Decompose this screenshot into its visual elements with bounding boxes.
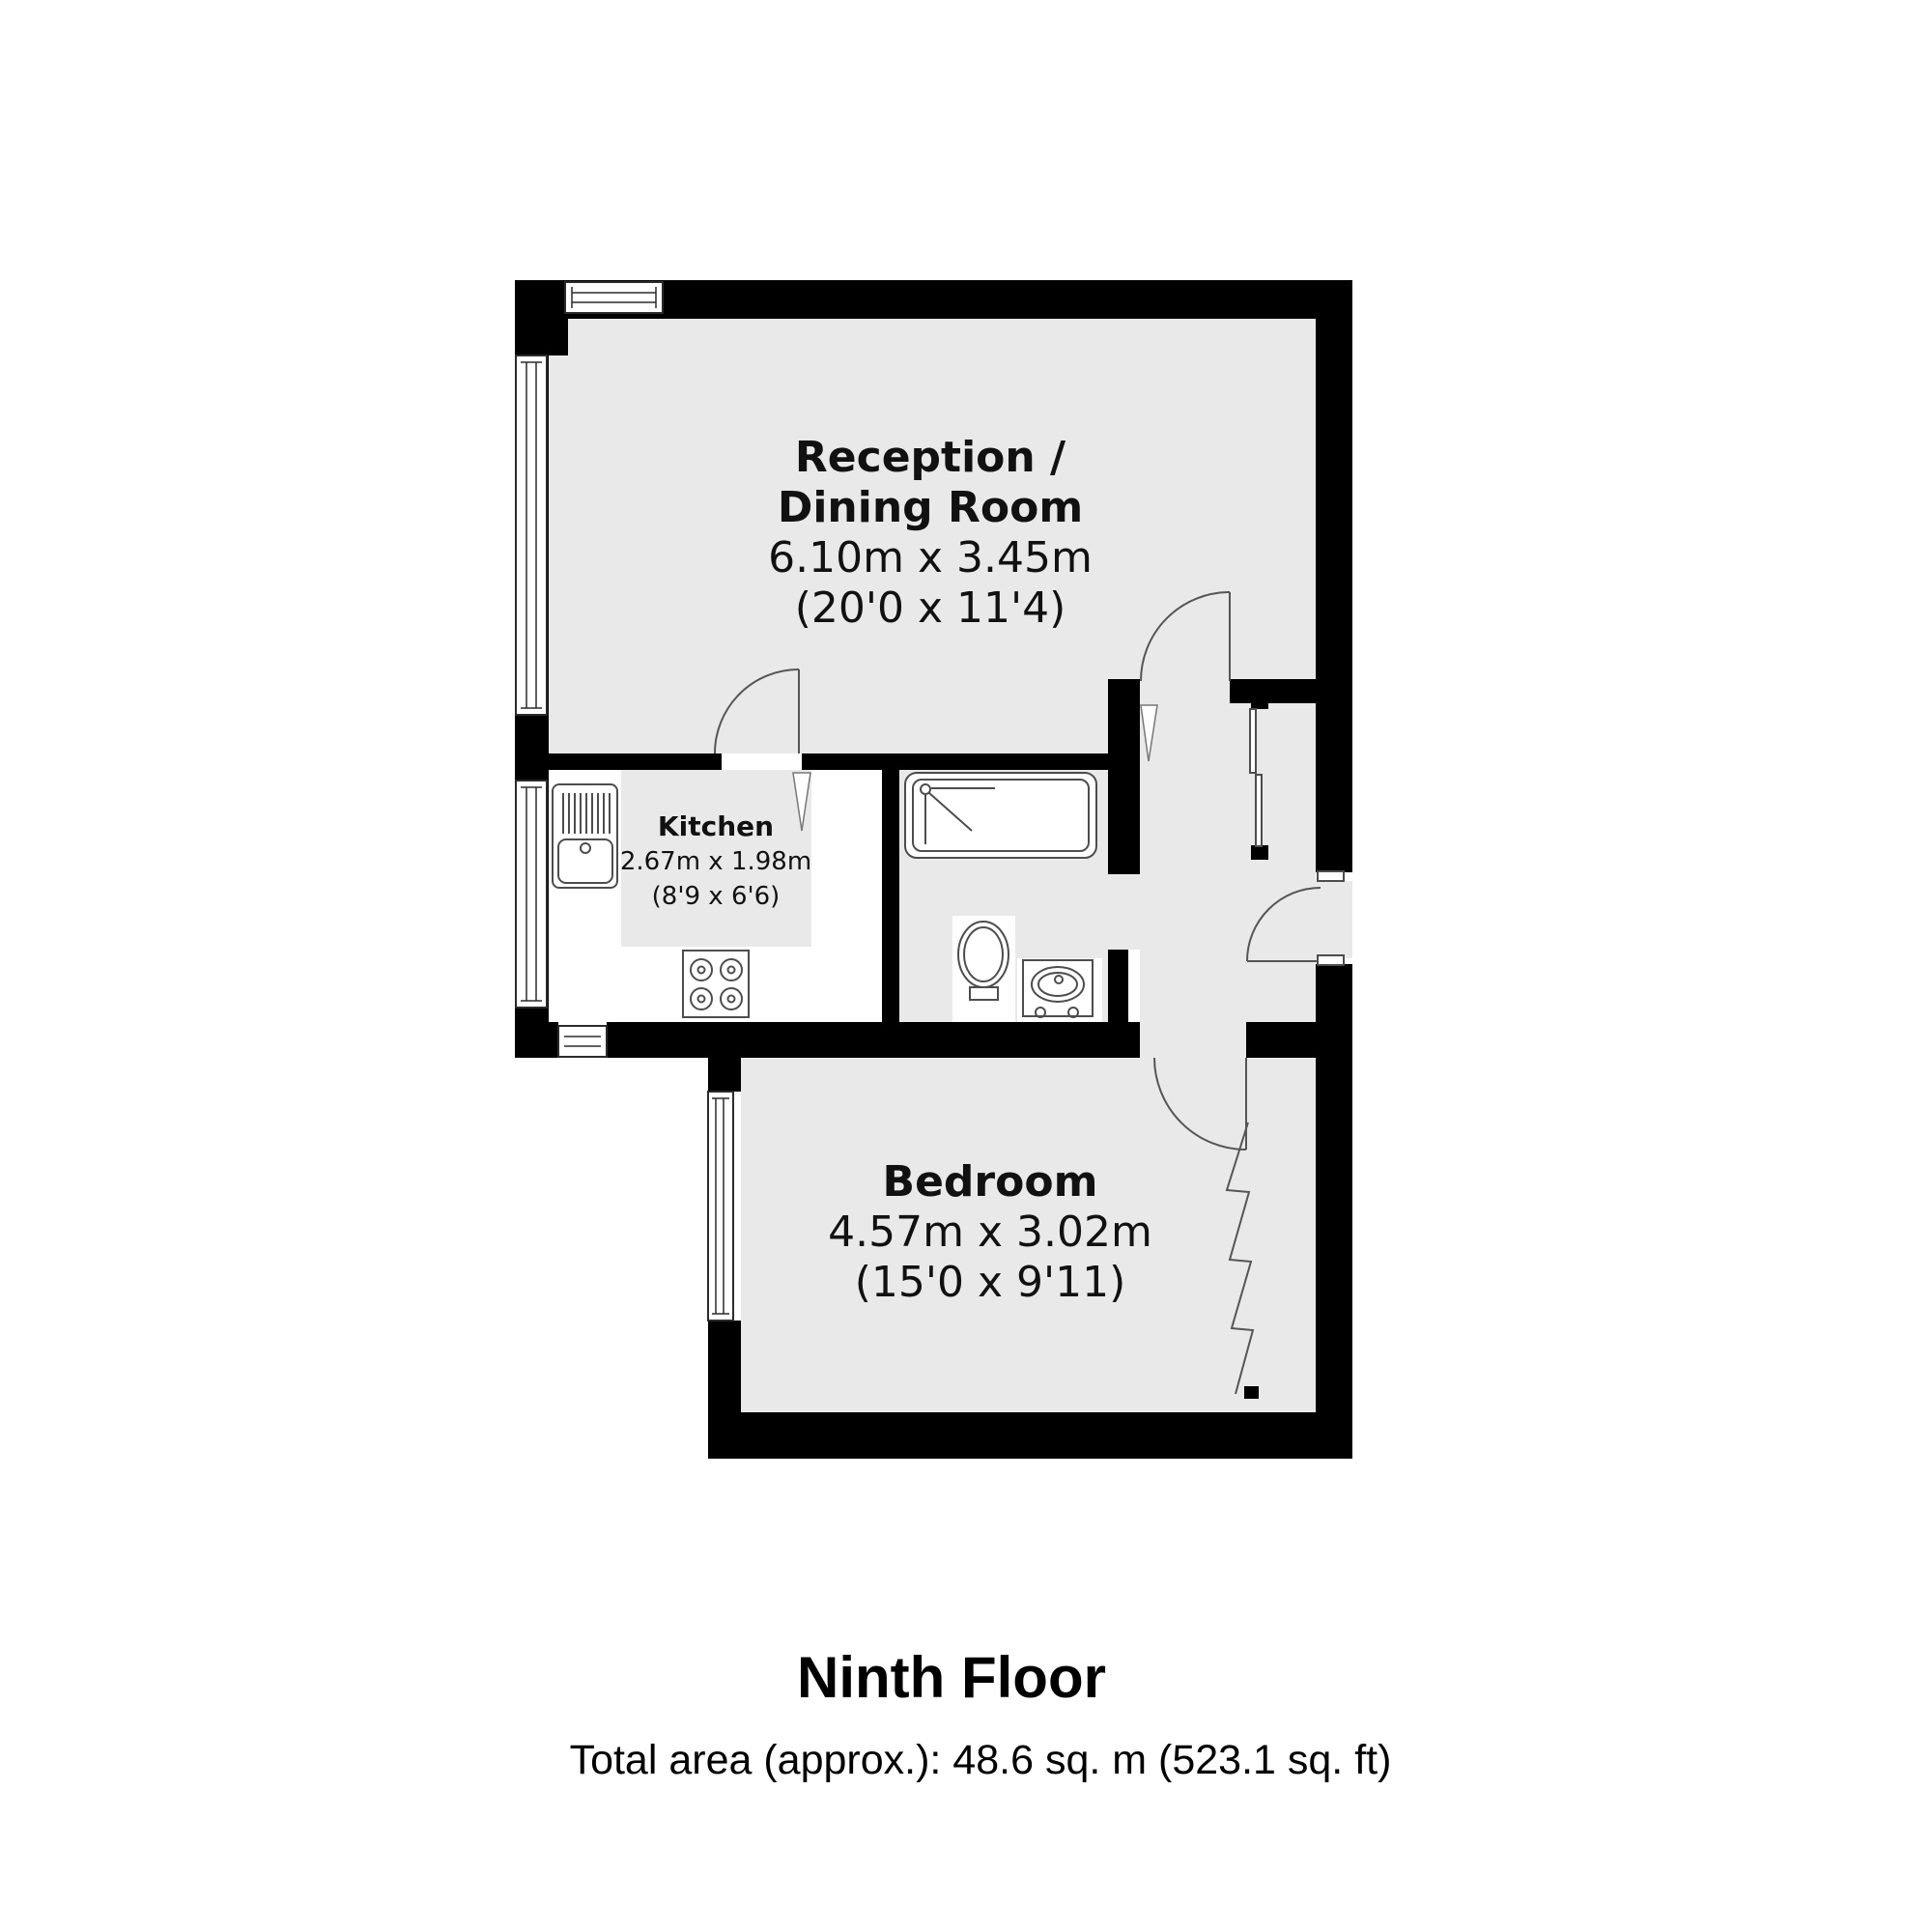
wall-cupboard-stub-top [1251, 696, 1268, 709]
wall-bedroom-left-upper [708, 1058, 741, 1092]
floorplan-drawing [0, 0, 1932, 1932]
reception-dims-imperial: (20'0 x 11'4) [640, 583, 1220, 634]
wall-wardrobe-top [1246, 1022, 1316, 1058]
label-kitchen: Kitchen 2.67m x 1.98m (8'9 x 6'6) [571, 810, 861, 914]
entrance-sill-bottom [1318, 955, 1344, 965]
wall-reception-kitchen [515, 753, 722, 770]
cupboard-floor [1258, 709, 1316, 845]
bedroom-name: Bedroom [700, 1157, 1280, 1207]
cupboard-door-bottom [1256, 775, 1262, 846]
hob-icon [683, 951, 749, 1017]
wall-reception-bathroom [802, 753, 1140, 770]
wall-hall-left [1108, 679, 1140, 874]
entrance-opening-floor [1316, 881, 1352, 958]
reception-dims-metric: 6.10m x 3.45m [640, 533, 1220, 583]
bathtub-icon [905, 773, 1096, 858]
floor-title: Ninth Floor [662, 1644, 1241, 1711]
wall-hall-top [1230, 679, 1316, 703]
wall-right-lower [1316, 964, 1352, 1459]
kitchen-name: Kitchen [571, 810, 861, 844]
window-kitchen-bottom-icon [558, 1026, 607, 1057]
window-kitchen-left-icon [516, 781, 547, 1008]
window-reception-left-icon [516, 355, 547, 715]
kitchen-dims-imperial: (8'9 x 6'6) [571, 879, 861, 914]
wall-bedroom-top [607, 1022, 1140, 1058]
total-area-caption: Total area (approx.): 48.6 sq. m (523.1 … [497, 1737, 1463, 1784]
window-reception-top-icon [565, 282, 663, 313]
entrance-sill-top [1318, 871, 1344, 881]
reception-name-line2: Dining Room [640, 483, 1220, 533]
bedroom-dims-metric: 4.57m x 3.02m [700, 1207, 1280, 1258]
bedroom-dims-imperial: (15'0 x 9'11) [700, 1258, 1280, 1308]
wall-kitchen-bathroom [882, 770, 899, 1022]
label-bedroom: Bedroom 4.57m x 3.02m (15'0 x 9'11) [700, 1157, 1280, 1308]
wall-kitchen-bottom-step [515, 1022, 558, 1058]
kitchen-dims-metric: 2.67m x 1.98m [571, 844, 861, 879]
reception-name-line1: Reception / [640, 433, 1220, 483]
wall-right-upper [1316, 280, 1352, 872]
wall-bathroom-door-stub [1108, 950, 1128, 1022]
cupboard-door-top [1250, 709, 1256, 773]
basin-icon [1023, 960, 1093, 1017]
bathroom-doorway-floor [1108, 874, 1140, 950]
hall-doorway-floor [1140, 679, 1230, 703]
wall-cupboard-stub-bottom [1251, 845, 1268, 860]
label-reception: Reception / Dining Room 6.10m x 3.45m (2… [640, 433, 1220, 634]
wall-wardrobe-stub-bottom [1244, 1386, 1259, 1399]
floorplan-page: Reception / Dining Room 6.10m x 3.45m (2… [0, 0, 1932, 1932]
wall-bedroom-bottom [708, 1412, 1352, 1459]
bedroom-doorway-floor [1140, 1022, 1246, 1058]
